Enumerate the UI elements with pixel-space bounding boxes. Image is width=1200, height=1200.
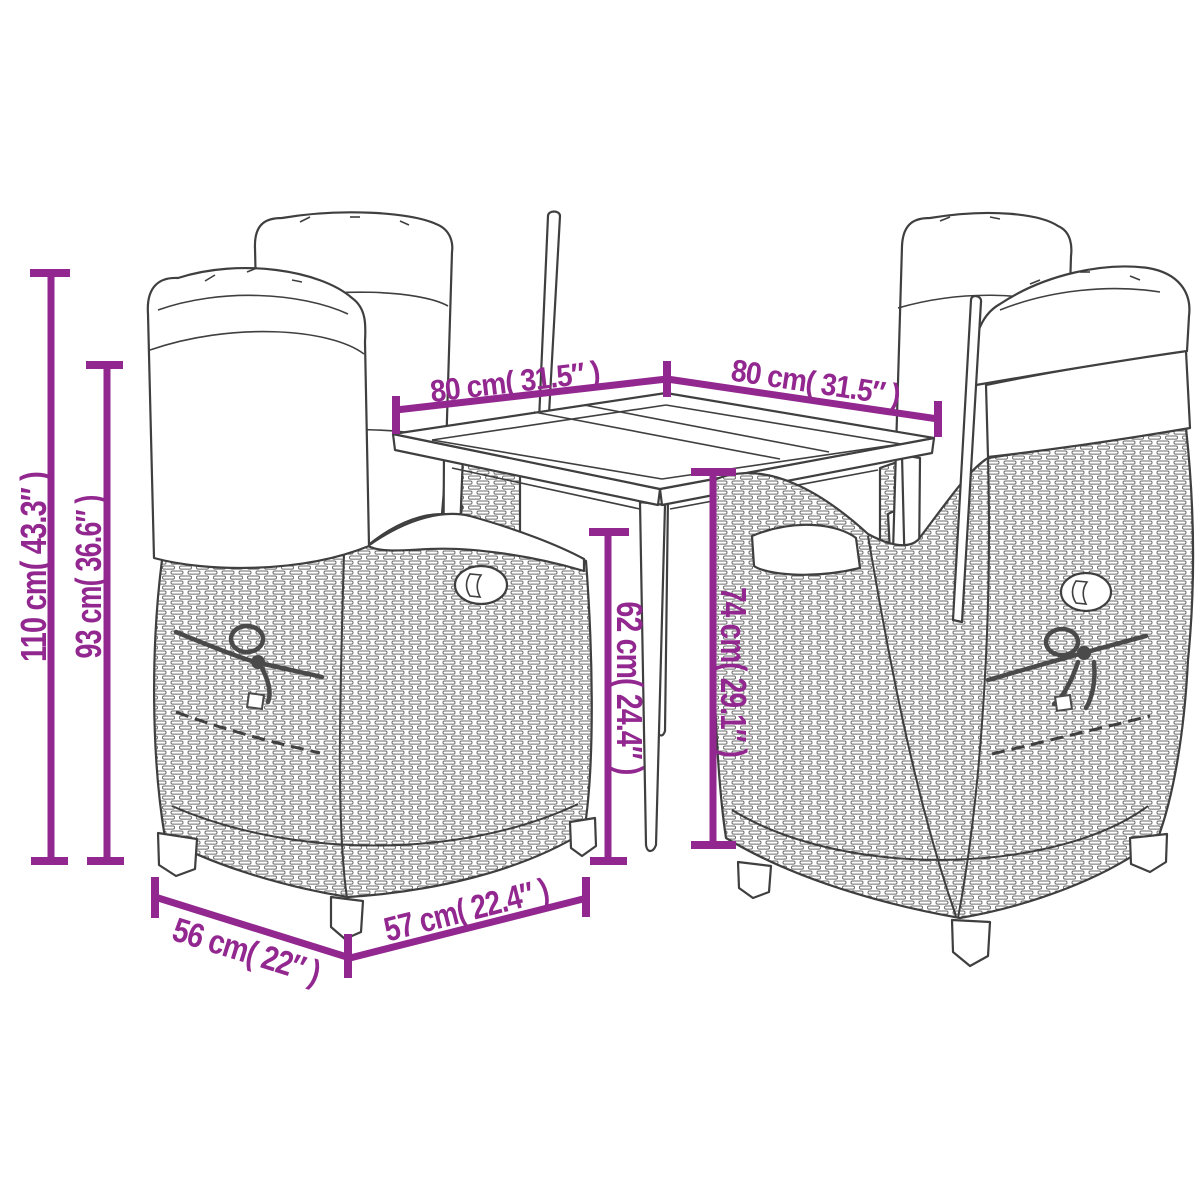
dim-93-label: 93 cm( 36.6″ ) [68, 495, 109, 658]
chair-front-left-leg-front [331, 897, 363, 939]
dim-62-label: 62 cm( 24.4″ ) [609, 602, 650, 775]
chair-front-left-back-cushion [148, 268, 369, 568]
dim-seat-depth: 56 cm( 22″ ) [155, 877, 350, 992]
bow-knot [1077, 646, 1091, 660]
dim-chair-total-height: 110 cm( 43.3″ ) [13, 273, 70, 861]
chair-front-right-leg-right [1130, 834, 1167, 872]
chair-front-left-leg-right [570, 818, 596, 856]
chair-front-left-body [154, 514, 592, 897]
chair-front-right-leg-left [738, 862, 771, 898]
chair-front-left-recline-knob [455, 566, 507, 604]
dim-80-left-label: 80 cm( 31.5″ ) [428, 354, 601, 409]
dim-110-label: 110 cm( 43.3″ ) [13, 472, 54, 662]
dim-74-label: 74 cm( 29.1″ ) [713, 587, 754, 757]
chair-front-right-leg-front [952, 920, 990, 966]
chair-front-left-vent-square [247, 693, 264, 709]
chair-front-right-body [713, 428, 1194, 918]
chair-front-right-vent-square [1055, 695, 1072, 711]
dim-backrest-height: 93 cm( 36.6″ ) [68, 365, 124, 861]
chair-front-right-recline-knob [1061, 573, 1111, 611]
chair-front-right-arm-cushion [752, 525, 860, 575]
product-dimension-diagram: 110 cm( 43.3″ ) 93 cm( 36.6″ ) 80 cm( 31… [0, 0, 1200, 1200]
chair-front-left-leg-left [158, 833, 197, 876]
furniture-line-drawing: 110 cm( 43.3″ ) 93 cm( 36.6″ ) 80 cm( 31… [0, 0, 1200, 1200]
